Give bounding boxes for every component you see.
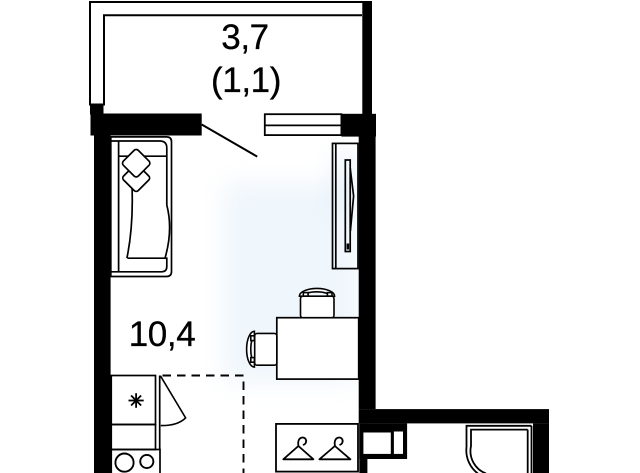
svg-text:3,7: 3,7 — [221, 18, 268, 57]
svg-text:(1,1): (1,1) — [211, 61, 281, 100]
svg-text:10,4: 10,4 — [129, 315, 196, 354]
